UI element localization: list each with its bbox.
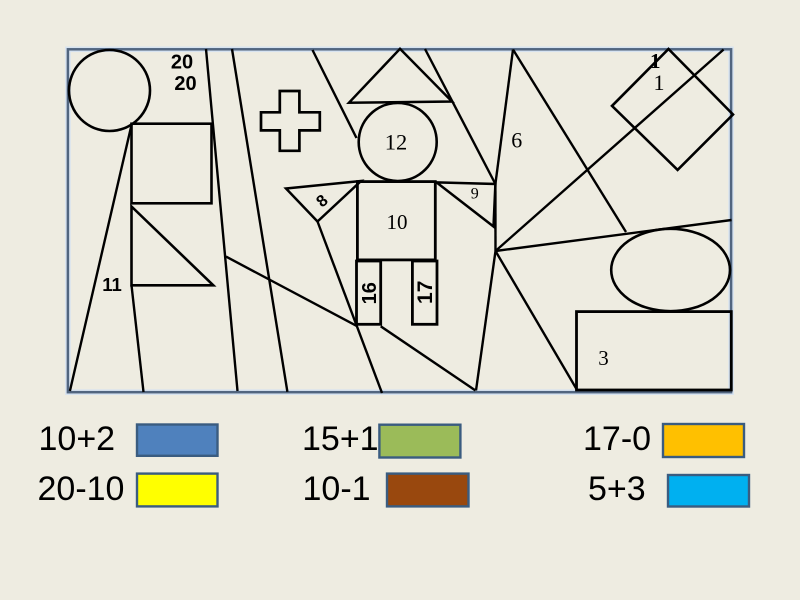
svg-text:1: 1: [654, 70, 665, 95]
svg-text:6: 6: [511, 128, 522, 153]
svg-text:10+2: 10+2: [39, 420, 116, 458]
svg-text:12: 12: [385, 130, 408, 155]
svg-text:5+3: 5+3: [588, 470, 646, 508]
svg-text:16: 16: [359, 282, 381, 304]
svg-text:11: 11: [102, 274, 122, 295]
svg-text:9: 9: [471, 186, 479, 203]
svg-text:17-0: 17-0: [583, 420, 651, 458]
svg-text:15+1: 15+1: [302, 420, 379, 458]
svg-text:10: 10: [387, 210, 408, 234]
svg-text:20-10: 20-10: [38, 470, 125, 508]
svg-text:17: 17: [414, 281, 437, 304]
svg-text:20: 20: [171, 52, 193, 74]
svg-text:3: 3: [598, 346, 609, 370]
svg-text:20: 20: [174, 73, 196, 95]
svg-text:10-1: 10-1: [303, 470, 371, 508]
